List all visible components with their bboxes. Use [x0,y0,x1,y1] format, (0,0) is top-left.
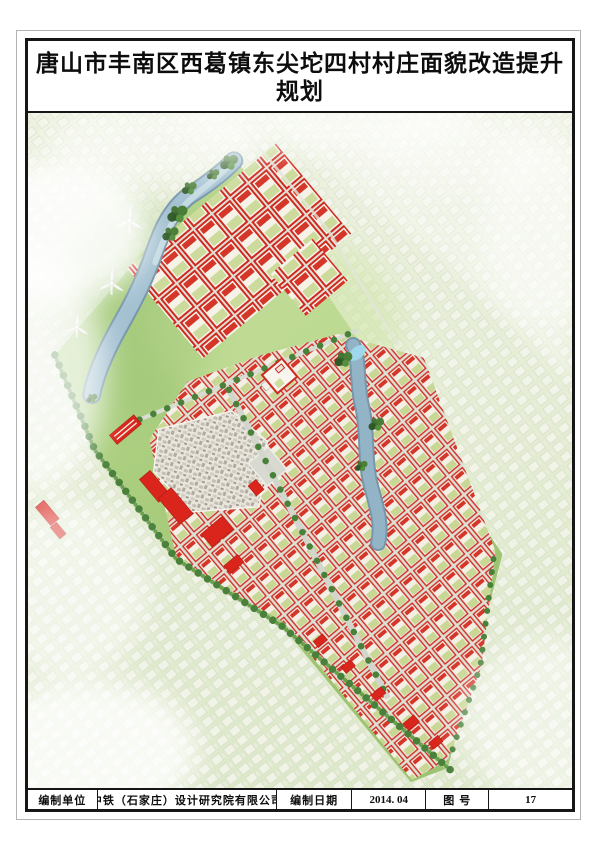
footer-sheetno-value: 17 [489,790,572,809]
drawing-sheet: 唐山市丰南区西葛镇东尖坨四村村庄面貌改造提升规划 ——村庄规划效果图 [0,0,600,849]
sheet-title: 唐山市丰南区西葛镇东尖坨四村村庄面貌改造提升规划 [28,50,572,105]
footer-org-label: 编制单位 [28,790,98,809]
plan-rendering [28,113,572,788]
inner-frame: 唐山市丰南区西葛镇东尖坨四村村庄面貌改造提升规划 ——村庄规划效果图 [25,38,575,812]
title-block: 唐山市丰南区西葛镇东尖坨四村村庄面貌改造提升规划 ——村庄规划效果图 [28,41,572,113]
title-bar-table: 编制单位 中铁（石家庄）设计研究院有限公司 编制日期 2014. 04 图 号 … [28,788,572,809]
plan-rendering-svg [28,113,572,788]
footer-date-label: 编制日期 [277,790,352,809]
footer-date-value: 2014. 04 [352,790,426,809]
footer-sheetno-label: 图 号 [426,790,489,809]
footer-org-value: 中铁（石家庄）设计研究院有限公司 [98,790,278,809]
